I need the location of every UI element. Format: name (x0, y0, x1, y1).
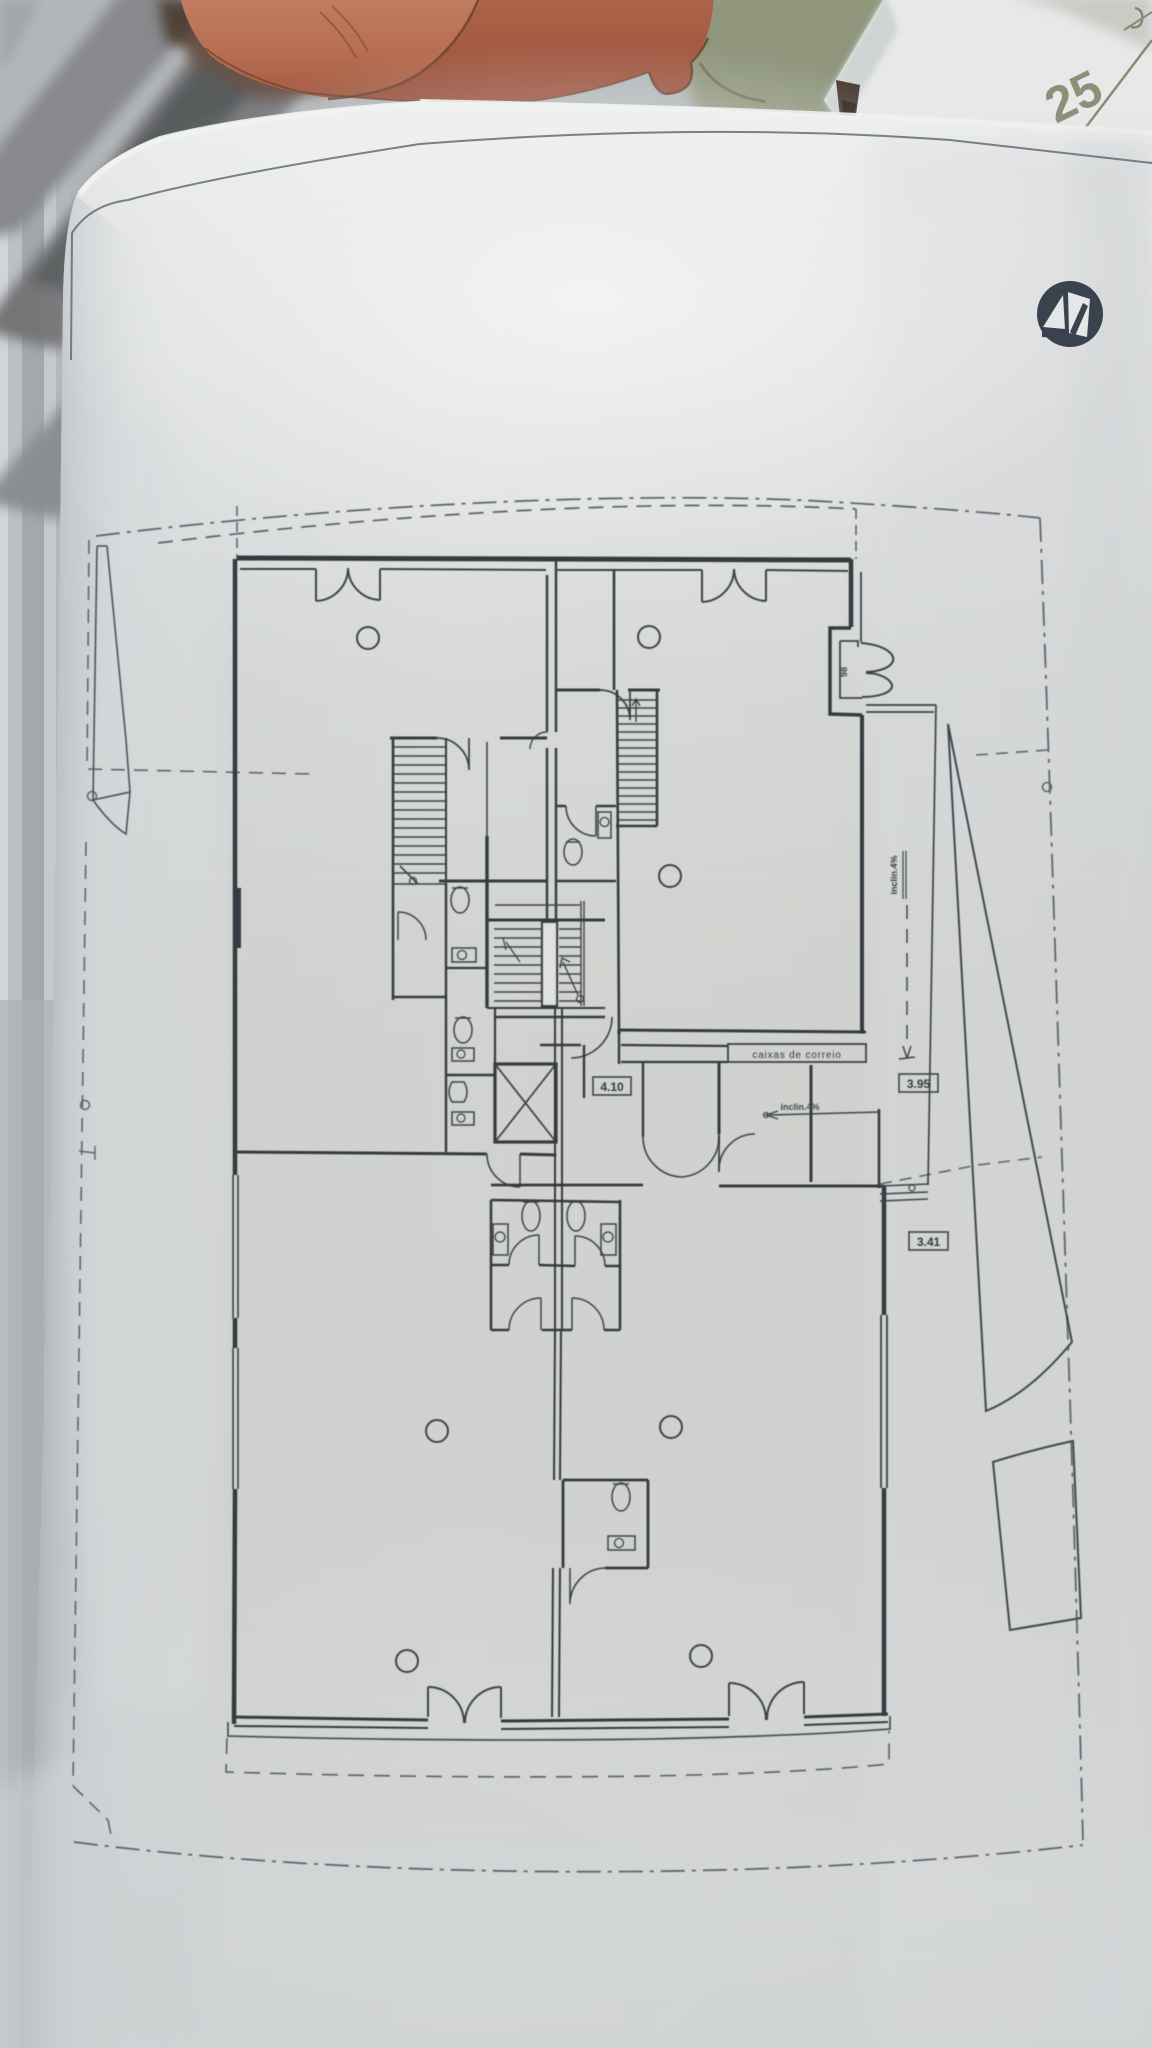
svg-text:caixas de correio: caixas de correio (752, 1050, 841, 1061)
svg-text:inclin.4%: inclin.4% (780, 1102, 819, 1112)
svg-text:inclin.4%: inclin.4% (889, 855, 899, 894)
svg-text:4.10: 4.10 (600, 1080, 624, 1094)
svg-text:3.41: 3.41 (917, 1235, 941, 1249)
svg-text:3.95: 3.95 (907, 1077, 931, 1091)
svg-text:98: 98 (839, 667, 849, 677)
